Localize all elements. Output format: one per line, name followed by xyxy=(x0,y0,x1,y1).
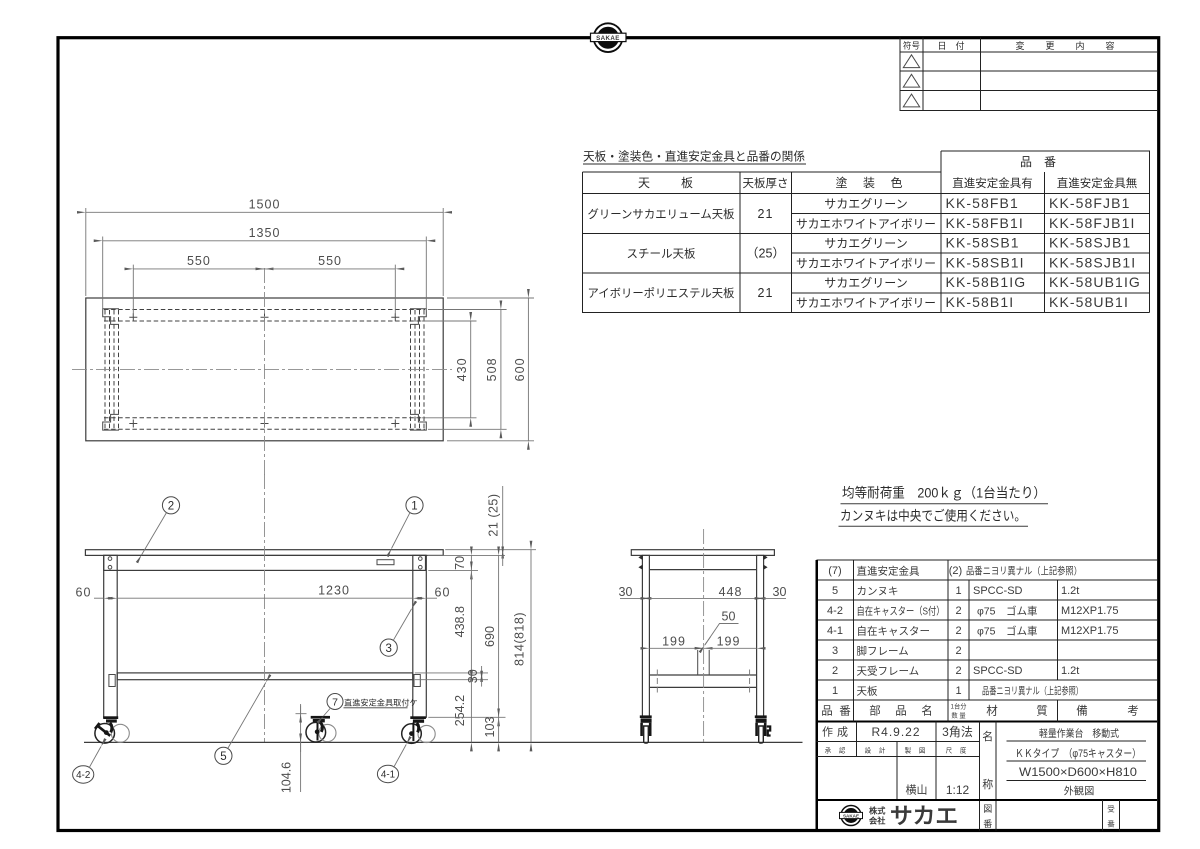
svg-text:2: 2 xyxy=(955,625,961,637)
svg-text:3角法: 3角法 xyxy=(942,725,973,739)
svg-text:自在キャスター（S付）: 自在キャスター（S付） xyxy=(857,605,945,618)
svg-text:サカエホワイトアイボリー: サカエホワイトアイボリー xyxy=(796,256,936,270)
svg-text:1350: 1350 xyxy=(249,226,281,240)
svg-text:変 更 内 容: 変 更 内 容 xyxy=(1015,40,1120,51)
svg-text:品: 品 xyxy=(1020,155,1032,169)
svg-text:254.2: 254.2 xyxy=(453,695,467,726)
svg-text:KK-58SJB1I: KK-58SJB1I xyxy=(1049,254,1136,270)
svg-text:1230: 1230 xyxy=(318,584,350,598)
svg-text:2: 2 xyxy=(955,665,961,677)
svg-text:均等耐荷重 200ｋｇ（1台当たり）: 均等耐荷重 200ｋｇ（1台当たり） xyxy=(842,485,1046,501)
svg-text:1: 1 xyxy=(955,585,961,597)
svg-text:7: 7 xyxy=(332,696,338,708)
svg-text:690: 690 xyxy=(483,626,497,647)
svg-text:KK-58FJB1I: KK-58FJB1I xyxy=(1049,215,1135,231)
svg-text:天板・塗装色・直進安定金具と品番の関係: 天板・塗装色・直進安定金具と品番の関係 xyxy=(583,149,805,164)
svg-text:21 (25): 21 (25) xyxy=(487,493,501,536)
svg-text:199: 199 xyxy=(717,634,741,648)
svg-text:1:12: 1:12 xyxy=(946,783,970,797)
svg-text:備: 備 xyxy=(1076,704,1088,718)
svg-text:KK-58B1I: KK-58B1I xyxy=(946,294,1015,310)
svg-text:サカエグリーン: サカエグリーン xyxy=(824,276,907,290)
svg-text:質: 質 xyxy=(1036,704,1048,718)
svg-text:部: 部 xyxy=(869,704,881,718)
svg-text:M12XP1.75: M12XP1.75 xyxy=(1061,605,1118,617)
svg-text:サカエホワイトアイボリー: サカエホワイトアイボリー xyxy=(796,296,936,310)
svg-text:600: 600 xyxy=(513,357,527,381)
svg-text:サカエグリーン: サカエグリーン xyxy=(824,197,907,211)
svg-text:図: 図 xyxy=(983,804,992,814)
svg-text:サカエ: サカエ xyxy=(890,804,958,829)
svg-text:SPCC-SD: SPCC-SD xyxy=(973,585,1023,597)
svg-text:番: 番 xyxy=(839,705,851,718)
svg-text:2: 2 xyxy=(955,605,961,617)
svg-text:(2): (2) xyxy=(949,565,962,577)
svg-text:50: 50 xyxy=(722,610,736,624)
svg-text:名: 名 xyxy=(921,704,933,718)
svg-text:KK-58FB1I: KK-58FB1I xyxy=(946,215,1024,231)
svg-text:日 付: 日 付 xyxy=(937,41,964,51)
svg-text:天板: 天板 xyxy=(857,685,878,698)
svg-text:KK-58SJB1: KK-58SJB1 xyxy=(1049,235,1131,251)
svg-text:天板厚さ: 天板厚さ xyxy=(743,176,789,190)
svg-text:3: 3 xyxy=(832,645,838,657)
svg-text:1.2t: 1.2t xyxy=(1061,665,1079,677)
svg-text:番: 番 xyxy=(1107,819,1115,829)
svg-text:直進安定金具取付ケ: 直進安定金具取付ケ xyxy=(344,698,418,708)
svg-text:天受フレーム: 天受フレーム xyxy=(857,666,920,678)
svg-text:装: 装 xyxy=(863,176,875,190)
svg-text:材: 材 xyxy=(986,704,998,718)
svg-text:5: 5 xyxy=(220,751,226,763)
svg-text:1500: 1500 xyxy=(249,198,281,212)
svg-text:3: 3 xyxy=(385,643,391,655)
svg-text:尺 度: 尺 度 xyxy=(946,746,970,755)
svg-text:塗: 塗 xyxy=(835,175,847,190)
svg-text:1台分: 1台分 xyxy=(950,702,967,711)
svg-text:SAKAE: SAKAE xyxy=(596,35,620,42)
svg-text:カンヌキは中央でご使用ください。: カンヌキは中央でご使用ください。 xyxy=(840,508,1026,524)
svg-text:天: 天 xyxy=(638,176,650,190)
svg-text:1.2t: 1.2t xyxy=(1061,585,1079,597)
svg-text:アイボリーポリエステル天板: アイボリーポリエステル天板 xyxy=(588,286,735,300)
svg-text:448: 448 xyxy=(719,585,743,599)
svg-text:M12XP1.75: M12XP1.75 xyxy=(1061,625,1118,637)
svg-text:2: 2 xyxy=(168,501,174,513)
svg-text:数 量: 数 量 xyxy=(951,711,966,720)
svg-text:2: 2 xyxy=(955,645,961,657)
svg-text:名: 名 xyxy=(982,729,993,743)
svg-text:21: 21 xyxy=(758,286,774,300)
svg-text:KK-58FJB1: KK-58FJB1 xyxy=(1049,195,1131,211)
svg-text:自在キャスター: 自在キャスター xyxy=(857,625,931,638)
svg-text:1: 1 xyxy=(832,685,838,697)
svg-text:作成: 作成 xyxy=(822,726,852,739)
svg-text:会社: 会社 xyxy=(869,816,886,826)
svg-text:103: 103 xyxy=(483,717,497,738)
svg-text:品: 品 xyxy=(895,705,907,718)
svg-text:60: 60 xyxy=(435,586,451,600)
svg-text:製 図: 製 図 xyxy=(905,746,929,755)
svg-text:4-1: 4-1 xyxy=(827,625,843,637)
svg-text:21: 21 xyxy=(758,207,774,221)
svg-text:W1500×D600×H810: W1500×D600×H810 xyxy=(1019,767,1137,779)
svg-text:KK-58SB1: KK-58SB1 xyxy=(946,235,1020,251)
svg-text:φ75 ゴム車: φ75 ゴム車 xyxy=(977,605,1038,618)
svg-text:30: 30 xyxy=(773,585,787,599)
svg-text:814(818): 814(818) xyxy=(512,612,526,666)
svg-text:軽量作業台 移動式: 軽量作業台 移動式 xyxy=(1039,727,1119,740)
svg-text:サカエグリーン: サカエグリーン xyxy=(824,237,907,251)
svg-text:板: 板 xyxy=(681,176,693,190)
svg-text:KK-58FB1: KK-58FB1 xyxy=(946,195,1019,211)
svg-text:称: 称 xyxy=(982,777,993,791)
svg-text:60: 60 xyxy=(76,586,92,600)
svg-text:直進安定金具無: 直進安定金具無 xyxy=(1057,176,1138,190)
svg-text:設 計: 設 計 xyxy=(865,746,889,755)
svg-text:438.8: 438.8 xyxy=(453,606,467,637)
svg-text:(7): (7) xyxy=(828,565,841,577)
svg-text:（25）: （25） xyxy=(746,247,785,261)
svg-text:R4.9.22: R4.9.22 xyxy=(871,725,920,739)
svg-text:2: 2 xyxy=(832,665,838,677)
svg-text:70: 70 xyxy=(453,556,467,570)
svg-text:符号: 符号 xyxy=(903,41,920,51)
svg-text:直進安定金具有: 直進安定金具有 xyxy=(952,176,1033,190)
svg-text:サカエホワイトアイボリー: サカエホワイトアイボリー xyxy=(796,217,936,231)
svg-text:SPCC-SD: SPCC-SD xyxy=(973,665,1023,677)
svg-text:脚フレーム: 脚フレーム xyxy=(857,645,909,658)
svg-text:外観図: 外観図 xyxy=(1064,785,1095,798)
svg-text:KK-58B1IG: KK-58B1IG xyxy=(946,274,1027,290)
svg-text:φ75 ゴム車: φ75 ゴム車 xyxy=(977,625,1038,638)
svg-text:番: 番 xyxy=(983,818,992,829)
svg-text:品番ニヨリ異ナル（上記参照）: 品番ニヨリ異ナル（上記参照） xyxy=(982,685,1083,698)
svg-text:4-2: 4-2 xyxy=(827,605,843,617)
svg-text:199: 199 xyxy=(662,634,686,648)
svg-text:番: 番 xyxy=(1044,155,1056,169)
svg-text:1: 1 xyxy=(955,685,961,697)
svg-text:4-2: 4-2 xyxy=(76,770,90,781)
svg-text:考: 考 xyxy=(1127,705,1139,718)
svg-text:SAKAE: SAKAE xyxy=(843,814,859,819)
svg-text:104.6: 104.6 xyxy=(280,762,294,793)
svg-text:スチール天板: スチール天板 xyxy=(627,247,696,261)
svg-text:直進安定金具: 直進安定金具 xyxy=(857,565,920,578)
svg-text:1: 1 xyxy=(411,501,417,513)
svg-text:430: 430 xyxy=(455,357,469,381)
svg-text:550: 550 xyxy=(187,254,211,268)
svg-text:KK-58UB1I: KK-58UB1I xyxy=(1049,294,1129,310)
svg-text:30: 30 xyxy=(619,585,633,599)
svg-text:色: 色 xyxy=(890,176,902,190)
svg-text:ＫＫタイプ （φ75キャスター）: ＫＫタイプ （φ75キャスター） xyxy=(1015,747,1141,760)
svg-text:550: 550 xyxy=(318,254,342,268)
svg-text:KK-58UB1IG: KK-58UB1IG xyxy=(1049,274,1141,290)
svg-text:株式: 株式 xyxy=(869,806,886,816)
svg-text:カンヌキ: カンヌキ xyxy=(857,586,899,598)
svg-text:横山: 横山 xyxy=(906,783,928,797)
svg-text:受: 受 xyxy=(1107,804,1115,814)
svg-text:4-1: 4-1 xyxy=(381,770,395,781)
svg-text:508: 508 xyxy=(485,357,499,381)
svg-text:品: 品 xyxy=(821,705,833,718)
svg-text:グリーンサカエリューム天板: グリーンサカエリューム天板 xyxy=(588,207,735,221)
svg-text:KK-58SB1I: KK-58SB1I xyxy=(946,254,1025,270)
svg-text:5: 5 xyxy=(832,585,838,597)
svg-text:承 認: 承 認 xyxy=(825,746,849,755)
svg-text:30: 30 xyxy=(466,669,480,683)
svg-text:品番ニヨリ異ナル（上記参照）: 品番ニヨリ異ナル（上記参照） xyxy=(966,565,1082,578)
